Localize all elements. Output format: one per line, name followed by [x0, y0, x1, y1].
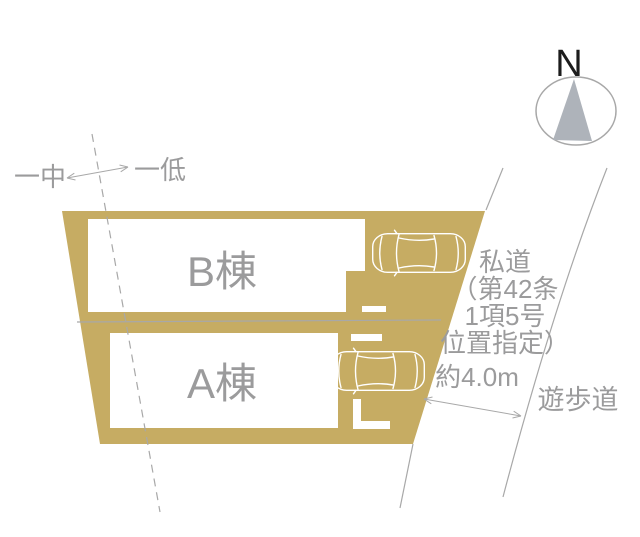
parking-dash-a: [351, 334, 382, 341]
road-width-arrow: [424, 397, 521, 418]
private-road-label-line2: （第42条: [452, 274, 559, 304]
road-width-label: 約4.0m: [435, 362, 519, 392]
site-plan-canvas: N 一中 一低 B棟 A棟 私道 （第42条 1項5号 位置指定） 約4.0m …: [0, 0, 640, 537]
compass: N: [536, 43, 616, 145]
compass-needle-icon: [553, 79, 592, 141]
private-road-label-line1: 私道: [479, 247, 531, 277]
building-a-label: A棟: [187, 360, 257, 407]
promenade-label: 遊歩道: [538, 385, 619, 415]
private-road-label-line4: 位置指定）: [440, 328, 570, 358]
compass-north-label: N: [555, 43, 582, 85]
parking-dash-b: [362, 306, 386, 312]
building-b-label: B棟: [187, 248, 257, 295]
zoning-right-label: 一低: [134, 155, 186, 185]
zoning-left-label: 一中: [14, 162, 66, 192]
private-road-label-line3: 1項5号: [465, 301, 546, 331]
site-plan-drawing: N 一中 一低 B棟 A棟 私道 （第42条 1項5号 位置指定） 約4.0m …: [0, 0, 640, 537]
